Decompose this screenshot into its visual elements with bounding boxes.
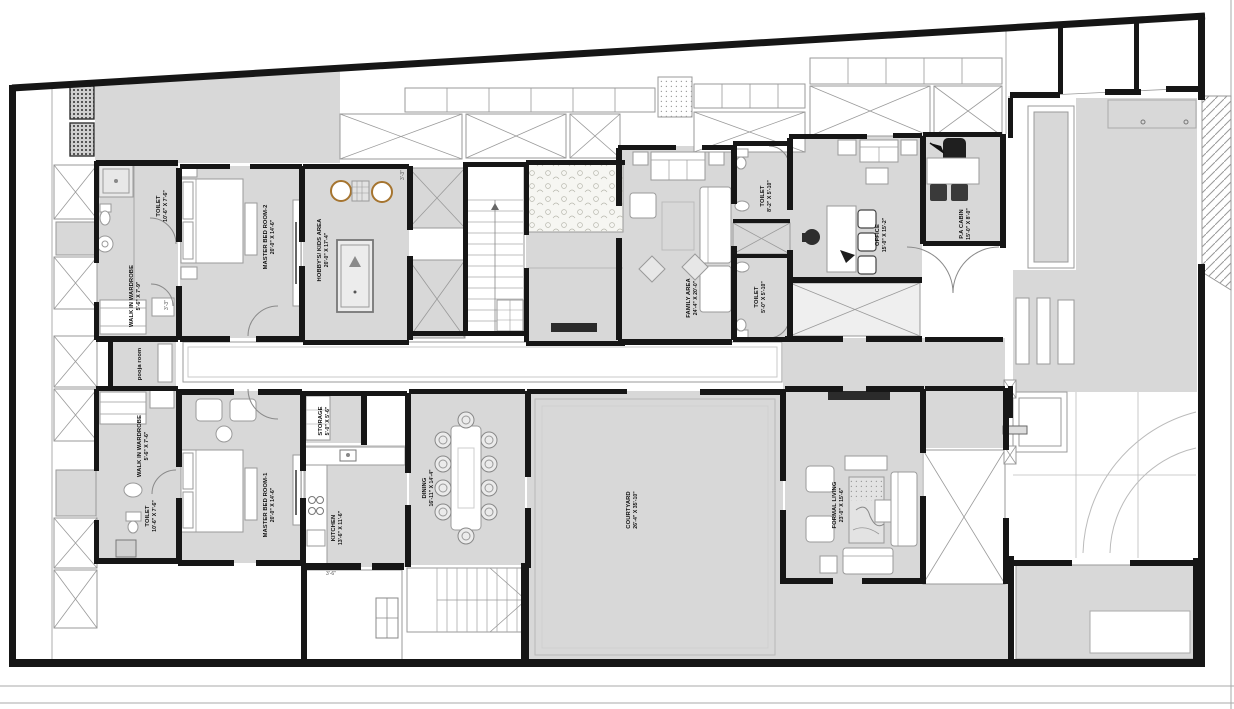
wall-segment (1166, 86, 1198, 92)
wall-segment (1198, 264, 1205, 667)
room-label-toilet-family-top-name: TOILET (760, 185, 766, 206)
wc (126, 512, 141, 521)
room-label-formal-living-size: 23'-0" X 15'-6" (839, 487, 845, 522)
corridor (183, 342, 782, 382)
dining-chair (481, 456, 497, 472)
room-label-kitchen-size: 13'-6" X 11'-6" (338, 510, 344, 545)
wall-segment (176, 391, 182, 467)
pooja-shelf (158, 344, 172, 382)
wall-segment (9, 85, 16, 667)
wall-segment (405, 505, 411, 567)
wc (736, 319, 746, 331)
room-label-dining-name: DINING (422, 477, 428, 498)
wall-segment (733, 337, 789, 342)
side-table (633, 152, 648, 165)
utility-room (1013, 392, 1067, 452)
wall-segment (94, 520, 99, 564)
wall-segment (618, 339, 732, 345)
dimension-note: 3'-3" (400, 170, 406, 180)
closet (152, 298, 174, 316)
planter (1058, 300, 1074, 364)
wall-segment (256, 336, 302, 342)
game-table (352, 181, 369, 201)
mullion-window (405, 88, 655, 112)
bench (845, 456, 887, 470)
wall-segment (923, 132, 1002, 137)
planter (56, 222, 96, 255)
wall-segment (180, 336, 230, 342)
wall-segment (1008, 386, 1013, 418)
wall-segment (1012, 560, 1072, 566)
wall-segment (407, 166, 413, 230)
wall-segment (463, 166, 468, 332)
wall-segment (702, 145, 733, 150)
floor (783, 338, 1005, 389)
wall-segment (96, 558, 178, 564)
wall-segment (866, 386, 924, 392)
wall-segment (925, 337, 1003, 342)
armchair (806, 516, 834, 542)
wall-segment (780, 510, 786, 584)
room-label-pa-cabin-size: 15'-0" X 8'-0" (966, 208, 972, 240)
side-table (820, 556, 837, 573)
stipple-panel (658, 77, 692, 117)
wall-segment (923, 241, 1002, 246)
planter-bed (528, 164, 623, 232)
dimension-note: 3'-3" (164, 300, 170, 310)
wall-segment (1010, 92, 1060, 98)
wall-segment (616, 238, 622, 340)
floor (925, 388, 1005, 448)
visitor-chair (858, 256, 876, 274)
wall-segment (361, 391, 367, 445)
wall-segment (9, 659, 1205, 667)
wall-segment (733, 219, 790, 223)
wall-segment (731, 246, 737, 340)
round-table (331, 181, 351, 201)
dining-chair (435, 456, 451, 472)
wall-segment (94, 161, 99, 263)
planter (1034, 112, 1068, 262)
sofa (700, 187, 731, 263)
ramp-hatch (1202, 96, 1231, 290)
wall-segment (862, 578, 926, 584)
wall-segment (96, 386, 178, 391)
room-label-dining-size: 16'-11" X 14'-4" (429, 469, 435, 507)
room-label-toilet-mbr2-size: 10'-6" X 7'-6" (163, 190, 169, 222)
wall-segment (526, 160, 625, 165)
wall-segment (258, 389, 302, 395)
wash-basin (735, 262, 749, 272)
armchair (196, 399, 222, 421)
pillow (183, 453, 193, 489)
room-label-family-area-name: FAMILY AREA (686, 278, 692, 318)
wall-segment (405, 393, 411, 473)
wall-segment (1134, 23, 1139, 94)
tv-console (293, 455, 301, 525)
shower (116, 540, 136, 557)
wall-segment (893, 133, 922, 138)
room-label-hobbys-kids-area-size: 20'-0" X 17'-4" (324, 232, 330, 267)
floor (527, 391, 783, 662)
dresser (245, 468, 257, 520)
room-label-kitchen-name: KITCHEN (331, 515, 337, 541)
armchair (806, 466, 834, 492)
room-label-master-bed-room-1-size: 20'-0" X 14'-6" (270, 487, 276, 522)
armchair (630, 193, 656, 218)
floor-plan-drawing: TOILET 10'-6" X 7'-6" WALK IN WARDROBE 5… (0, 0, 1234, 709)
wall-segment (527, 389, 627, 394)
wall-segment (789, 134, 867, 139)
dining-chair (435, 480, 451, 496)
room-label-storage-name: STORAGE (318, 406, 324, 435)
armchair (901, 140, 917, 155)
armchair (838, 140, 856, 155)
wall-segment (299, 166, 305, 242)
room-label-formal-living-name: FORMAL LIVING (832, 481, 838, 528)
wall-segment (303, 391, 407, 396)
room-label-toilet-mbr1-name: TOILET (145, 505, 151, 526)
wall-segment (180, 164, 230, 169)
wall-segment (618, 145, 676, 150)
wc (736, 157, 746, 169)
wall-segment (1198, 14, 1205, 100)
dining-chair (481, 504, 497, 520)
wall-segment (303, 340, 409, 345)
wall-segment (733, 254, 790, 258)
wall-segment (256, 560, 302, 566)
jali-screen (70, 123, 94, 156)
room-label-wardrobe-mbr2-name: WALK IN WARDROBE (129, 265, 135, 327)
dining-chair (481, 432, 497, 448)
wash-basin (97, 236, 113, 252)
room-label-courtyard-size: 26'-4" X 35'-10" (633, 491, 639, 529)
wall-segment (785, 578, 833, 584)
dining-chair (435, 504, 451, 520)
wall-segment (108, 336, 113, 390)
room-label-storage-size: 5'-0" X 5'-6" (325, 406, 331, 435)
sofa (651, 152, 705, 180)
entrance-mat (551, 323, 597, 332)
wall-segment (176, 498, 182, 564)
wall-segment (525, 391, 531, 477)
wall-segment (407, 256, 413, 340)
wall-segment (1105, 89, 1141, 95)
visitor-chair (930, 184, 947, 201)
wall-segment (920, 136, 926, 244)
wall-segment (178, 560, 234, 566)
wall-segment (787, 250, 793, 340)
wall-segment (616, 148, 622, 206)
wall-segment (780, 389, 786, 481)
wall-segment (250, 164, 302, 169)
room-label-pa-cabin-name: P.A CABIN (959, 209, 965, 239)
room-label-toilet-mbr1-size: 10'-6" X 7'-6" (152, 500, 158, 532)
room-label-master-bed-room-2-size: 20'-0" X 14'-6" (270, 219, 276, 254)
wall-segment (176, 286, 182, 340)
wc (100, 211, 110, 225)
dining-chair (458, 412, 474, 428)
room-label-office-name: OFFICE (875, 224, 881, 246)
wall-segment (700, 389, 783, 395)
sink (346, 453, 350, 457)
wall-segment (301, 563, 307, 662)
wall-segment (925, 386, 1005, 391)
planter (1037, 298, 1050, 364)
wall-segment (785, 386, 843, 392)
wall-segment (526, 341, 625, 346)
office-chair (804, 229, 820, 245)
wall-segment (789, 277, 922, 283)
wall-segment (409, 389, 525, 394)
room-label-toilet-family-bottom-size: 5'-0" X 5'-10" (761, 281, 767, 313)
room-label-wardrobe-mbr1-size: 5'-6" X 7'-6" (144, 431, 150, 460)
room-label-master-bed-room-2-name: MASTER BED ROOM-2 (263, 205, 269, 270)
visitor-chair (951, 184, 968, 201)
dresser (245, 203, 257, 255)
wall-segment (299, 266, 305, 342)
room-label-family-area-size: 24'-4" X 20'-0" (693, 280, 699, 315)
sofa (843, 548, 893, 574)
round-table (216, 426, 232, 442)
room-label-wardrobe-mbr2-size: 5'-6" X 7'-9" (136, 281, 142, 310)
wash-basin (124, 483, 142, 497)
closet (150, 390, 174, 408)
mullion-window (810, 58, 1002, 84)
desk (927, 158, 979, 184)
room-label-toilet-family-bottom-name: TOILET (754, 286, 760, 307)
wall-segment (463, 162, 526, 167)
room-label-pooja-room: pooja room (137, 348, 143, 381)
wall-segment (787, 138, 793, 210)
room-label-hobbys-kids-area-name: HOBBY'S/ KIDS AREA (317, 218, 323, 282)
wall-segment (300, 391, 306, 471)
wall-segment (1058, 26, 1063, 94)
side-table (181, 267, 197, 279)
shower-drain (114, 179, 118, 183)
wall-segment (1008, 98, 1013, 138)
pillow (183, 222, 193, 259)
planter (56, 470, 96, 516)
visitor-chair (858, 233, 876, 251)
pool-ball (354, 291, 357, 294)
floor-plan-sheet: TOILET 10'-6" X 7'-6" WALK IN WARDROBE 5… (0, 0, 1234, 709)
pillow (183, 182, 193, 219)
wall-segment (524, 268, 529, 342)
jali-screen (70, 86, 94, 119)
wall-segment (303, 164, 409, 169)
wall-segment (524, 163, 529, 235)
room-label-courtyard-name: COURTYARD (626, 491, 632, 528)
dining-table (451, 426, 481, 530)
wall-segment (303, 563, 361, 570)
wall-segment (733, 141, 789, 146)
floor (1076, 98, 1197, 392)
wall-segment (920, 389, 926, 453)
wall-segment (178, 389, 234, 395)
kitchen-counter (305, 465, 327, 565)
wall-segment (866, 336, 922, 342)
rug (849, 477, 884, 501)
office-chair (802, 233, 806, 242)
pillow (183, 492, 193, 528)
room-label-office-size: 15'-0" X 15'-2" (882, 217, 888, 252)
wall-segment (1130, 560, 1198, 566)
car (1090, 611, 1190, 653)
wall-segment (176, 168, 182, 242)
chaise (700, 266, 731, 312)
dining-chair (458, 528, 474, 544)
wall-segment (1008, 556, 1014, 662)
wall-segment (94, 389, 99, 471)
wall-segment (785, 336, 843, 342)
visitor-chair (858, 210, 876, 228)
dining-chair (481, 480, 497, 496)
room-label-master-bed-room-1-name: MASTER BED ROOM-1 (263, 472, 269, 537)
planter (1016, 298, 1029, 364)
wall-segment (96, 160, 178, 166)
wash-basin (735, 201, 749, 211)
room-label-toilet-family-top-size: 8'-2" X 5'-10" (767, 180, 773, 212)
wall-segment (521, 563, 529, 662)
wall-segment (1000, 134, 1006, 248)
wall-segment (94, 302, 99, 340)
armchair (230, 399, 256, 421)
wall-segment (372, 563, 404, 570)
wall-segment (920, 496, 926, 584)
desk (827, 206, 856, 272)
wall-segment (525, 508, 531, 568)
dining-chair (435, 432, 451, 448)
side-table (709, 152, 724, 165)
room-label-wardrobe-mbr1-name: WALK IN WARDROBE (137, 415, 143, 477)
center-table (875, 500, 891, 522)
center-table (866, 168, 888, 184)
wall-segment (300, 498, 306, 564)
mullion-window (694, 84, 805, 108)
sofa (891, 472, 917, 546)
wall-segment (409, 331, 526, 336)
room-label-toilet-mbr2-name: TOILET (156, 195, 162, 216)
wall-segment (731, 146, 737, 204)
round-table (372, 182, 392, 202)
tv-console (828, 391, 890, 400)
wc (128, 521, 138, 533)
dimension-note: 3'-6" (326, 571, 336, 577)
pool-table (337, 240, 373, 312)
